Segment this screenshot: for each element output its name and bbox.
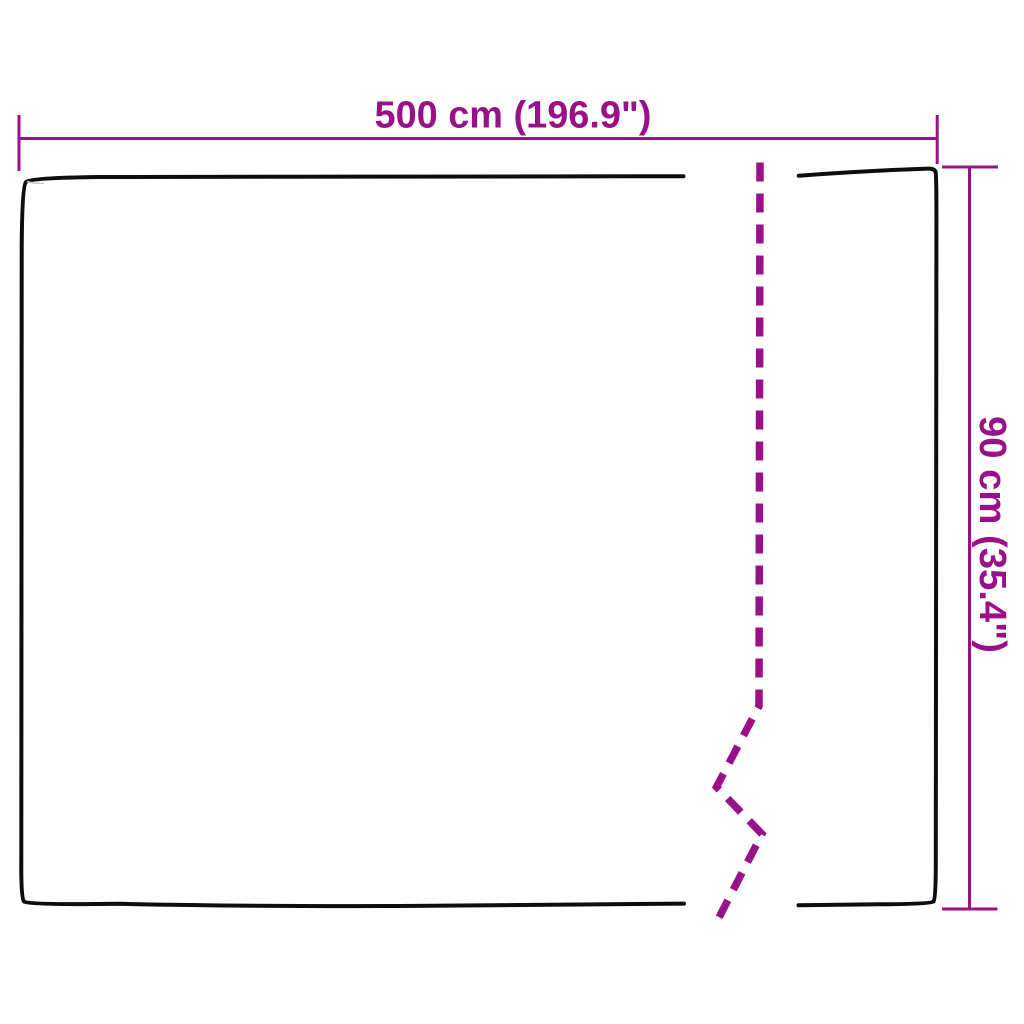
svg-text:90 cm (35.4"): 90 cm (35.4") xyxy=(971,416,1013,653)
svg-text:500 cm (196.9"): 500 cm (196.9") xyxy=(375,95,652,137)
